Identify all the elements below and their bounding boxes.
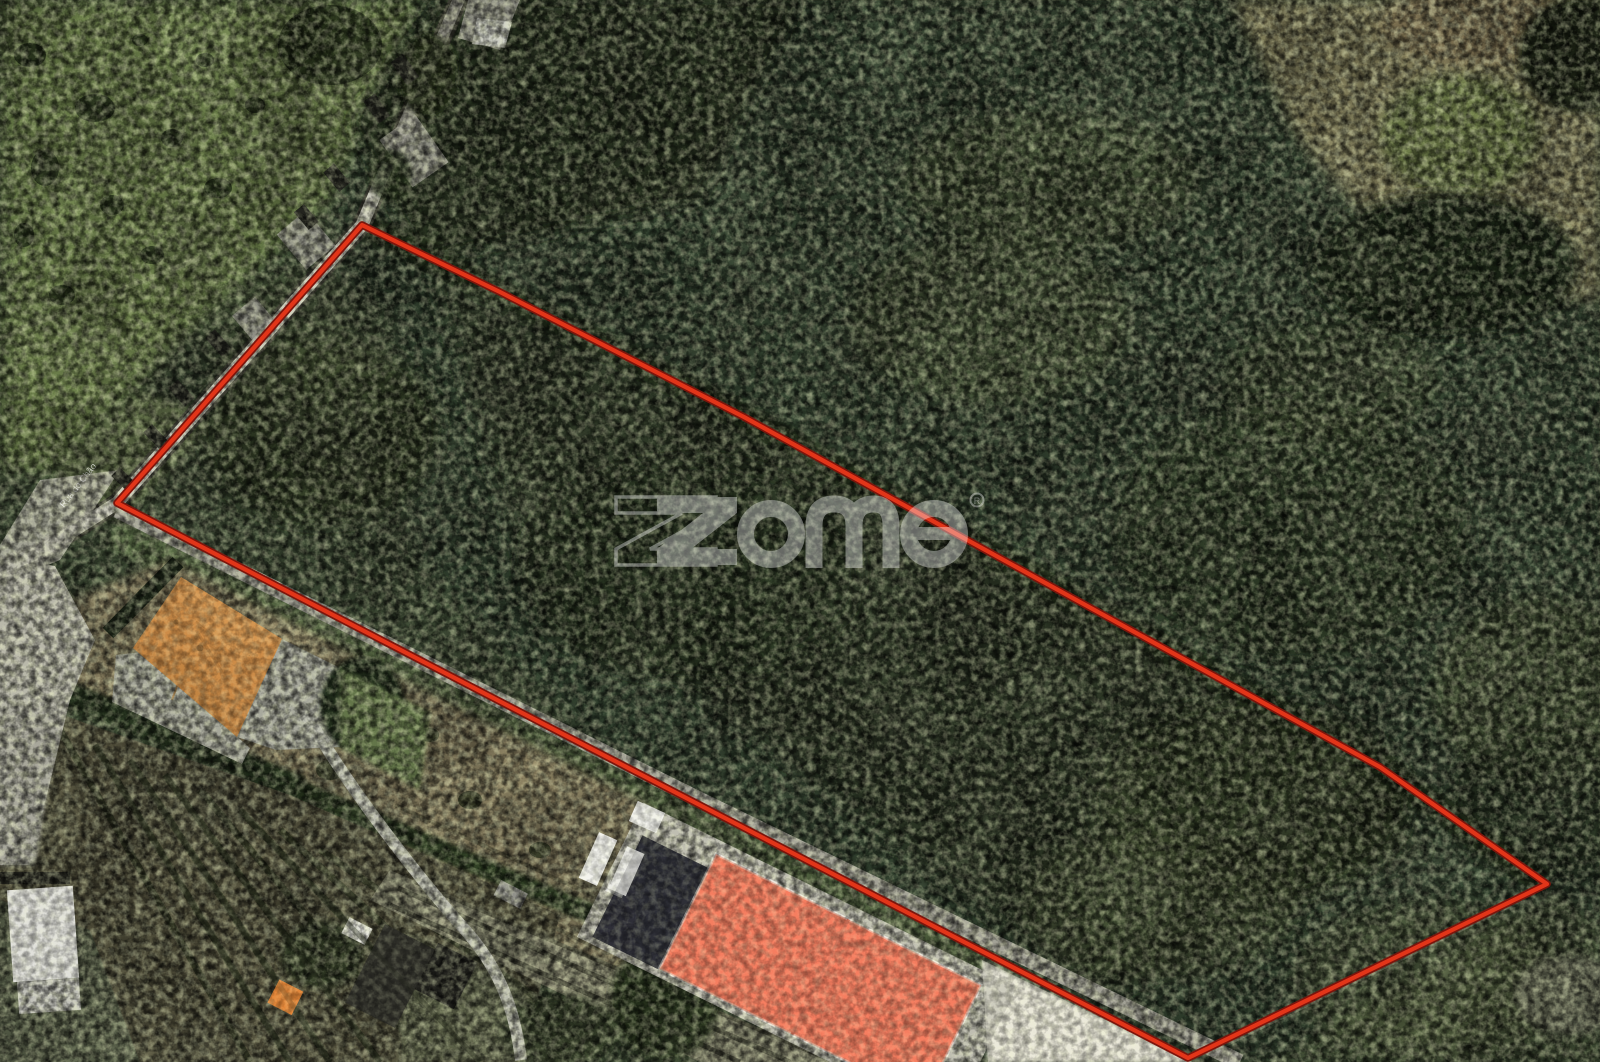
svg-text:R: R [974,496,981,506]
